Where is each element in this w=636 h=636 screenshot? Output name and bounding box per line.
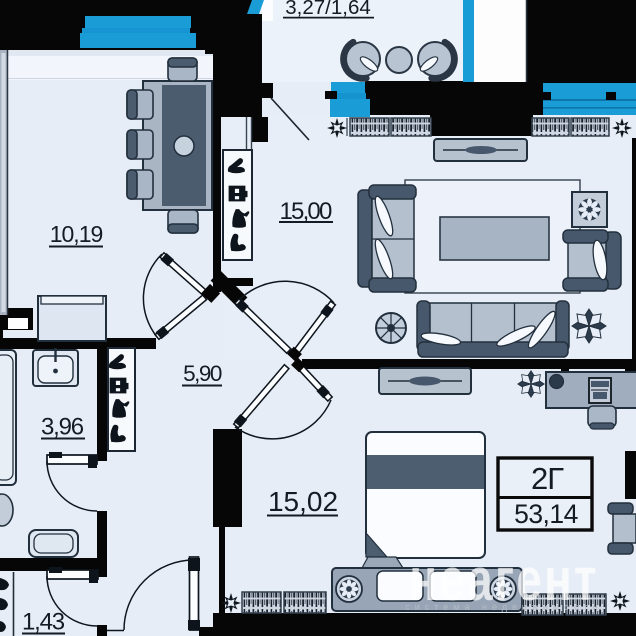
svg-text:15,02: 15,02 <box>268 486 338 517</box>
svg-text:1,43: 1,43 <box>22 609 65 636</box>
svg-text:15,00: 15,00 <box>279 198 332 225</box>
svg-text:10,19: 10,19 <box>50 221 103 247</box>
svg-text:система недвижимости: система недвижимости <box>405 602 602 612</box>
svg-text:3,96: 3,96 <box>41 414 84 441</box>
svg-text:3,27/1,64: 3,27/1,64 <box>285 0 371 19</box>
svg-text:5,90: 5,90 <box>183 361 222 386</box>
svg-text:2Г: 2Г <box>531 461 564 496</box>
svg-text:53,14: 53,14 <box>514 499 578 529</box>
